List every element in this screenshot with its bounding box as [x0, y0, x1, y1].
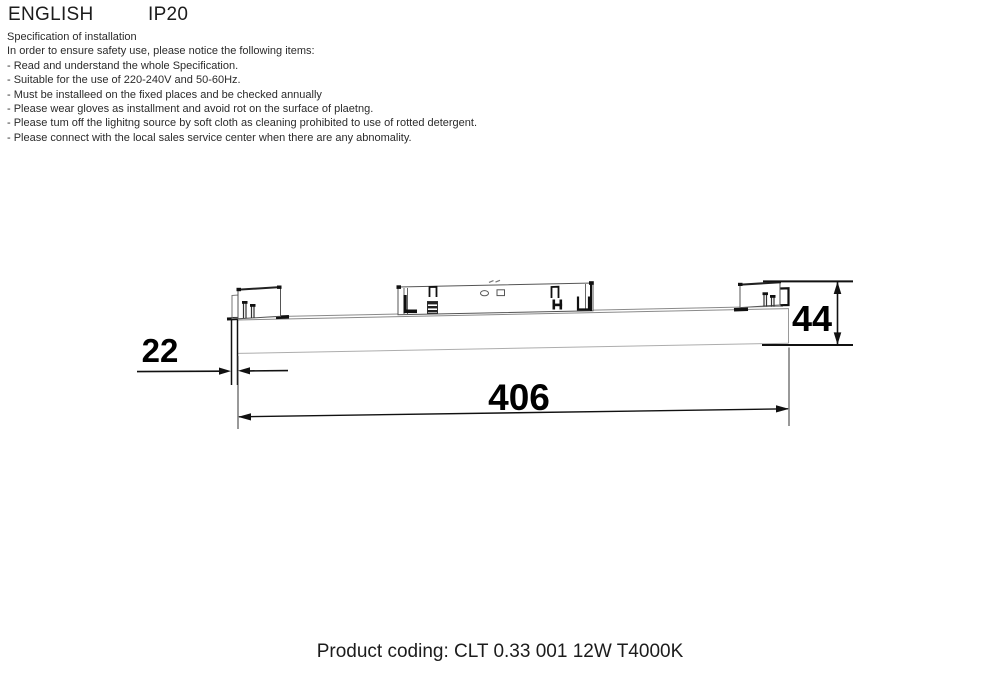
product-coding: Product coding: CLT 0.33 001 12W T4000K: [0, 641, 1000, 663]
dim-length-label: 406: [488, 377, 550, 418]
dim-height-label: 44: [792, 298, 832, 339]
left-bracket: [232, 286, 282, 319]
dimension-length-406: 406: [238, 348, 789, 430]
spec-sheet-page: ENGLISH IP20 Specification of installati…: [0, 0, 1000, 690]
center-bracket: [397, 280, 594, 315]
dim-offset-label: 22: [142, 332, 179, 369]
fixture-body: [227, 306, 789, 385]
installation-drawing: 22 406 44: [0, 0, 1000, 690]
right-bracket: [738, 282, 789, 307]
